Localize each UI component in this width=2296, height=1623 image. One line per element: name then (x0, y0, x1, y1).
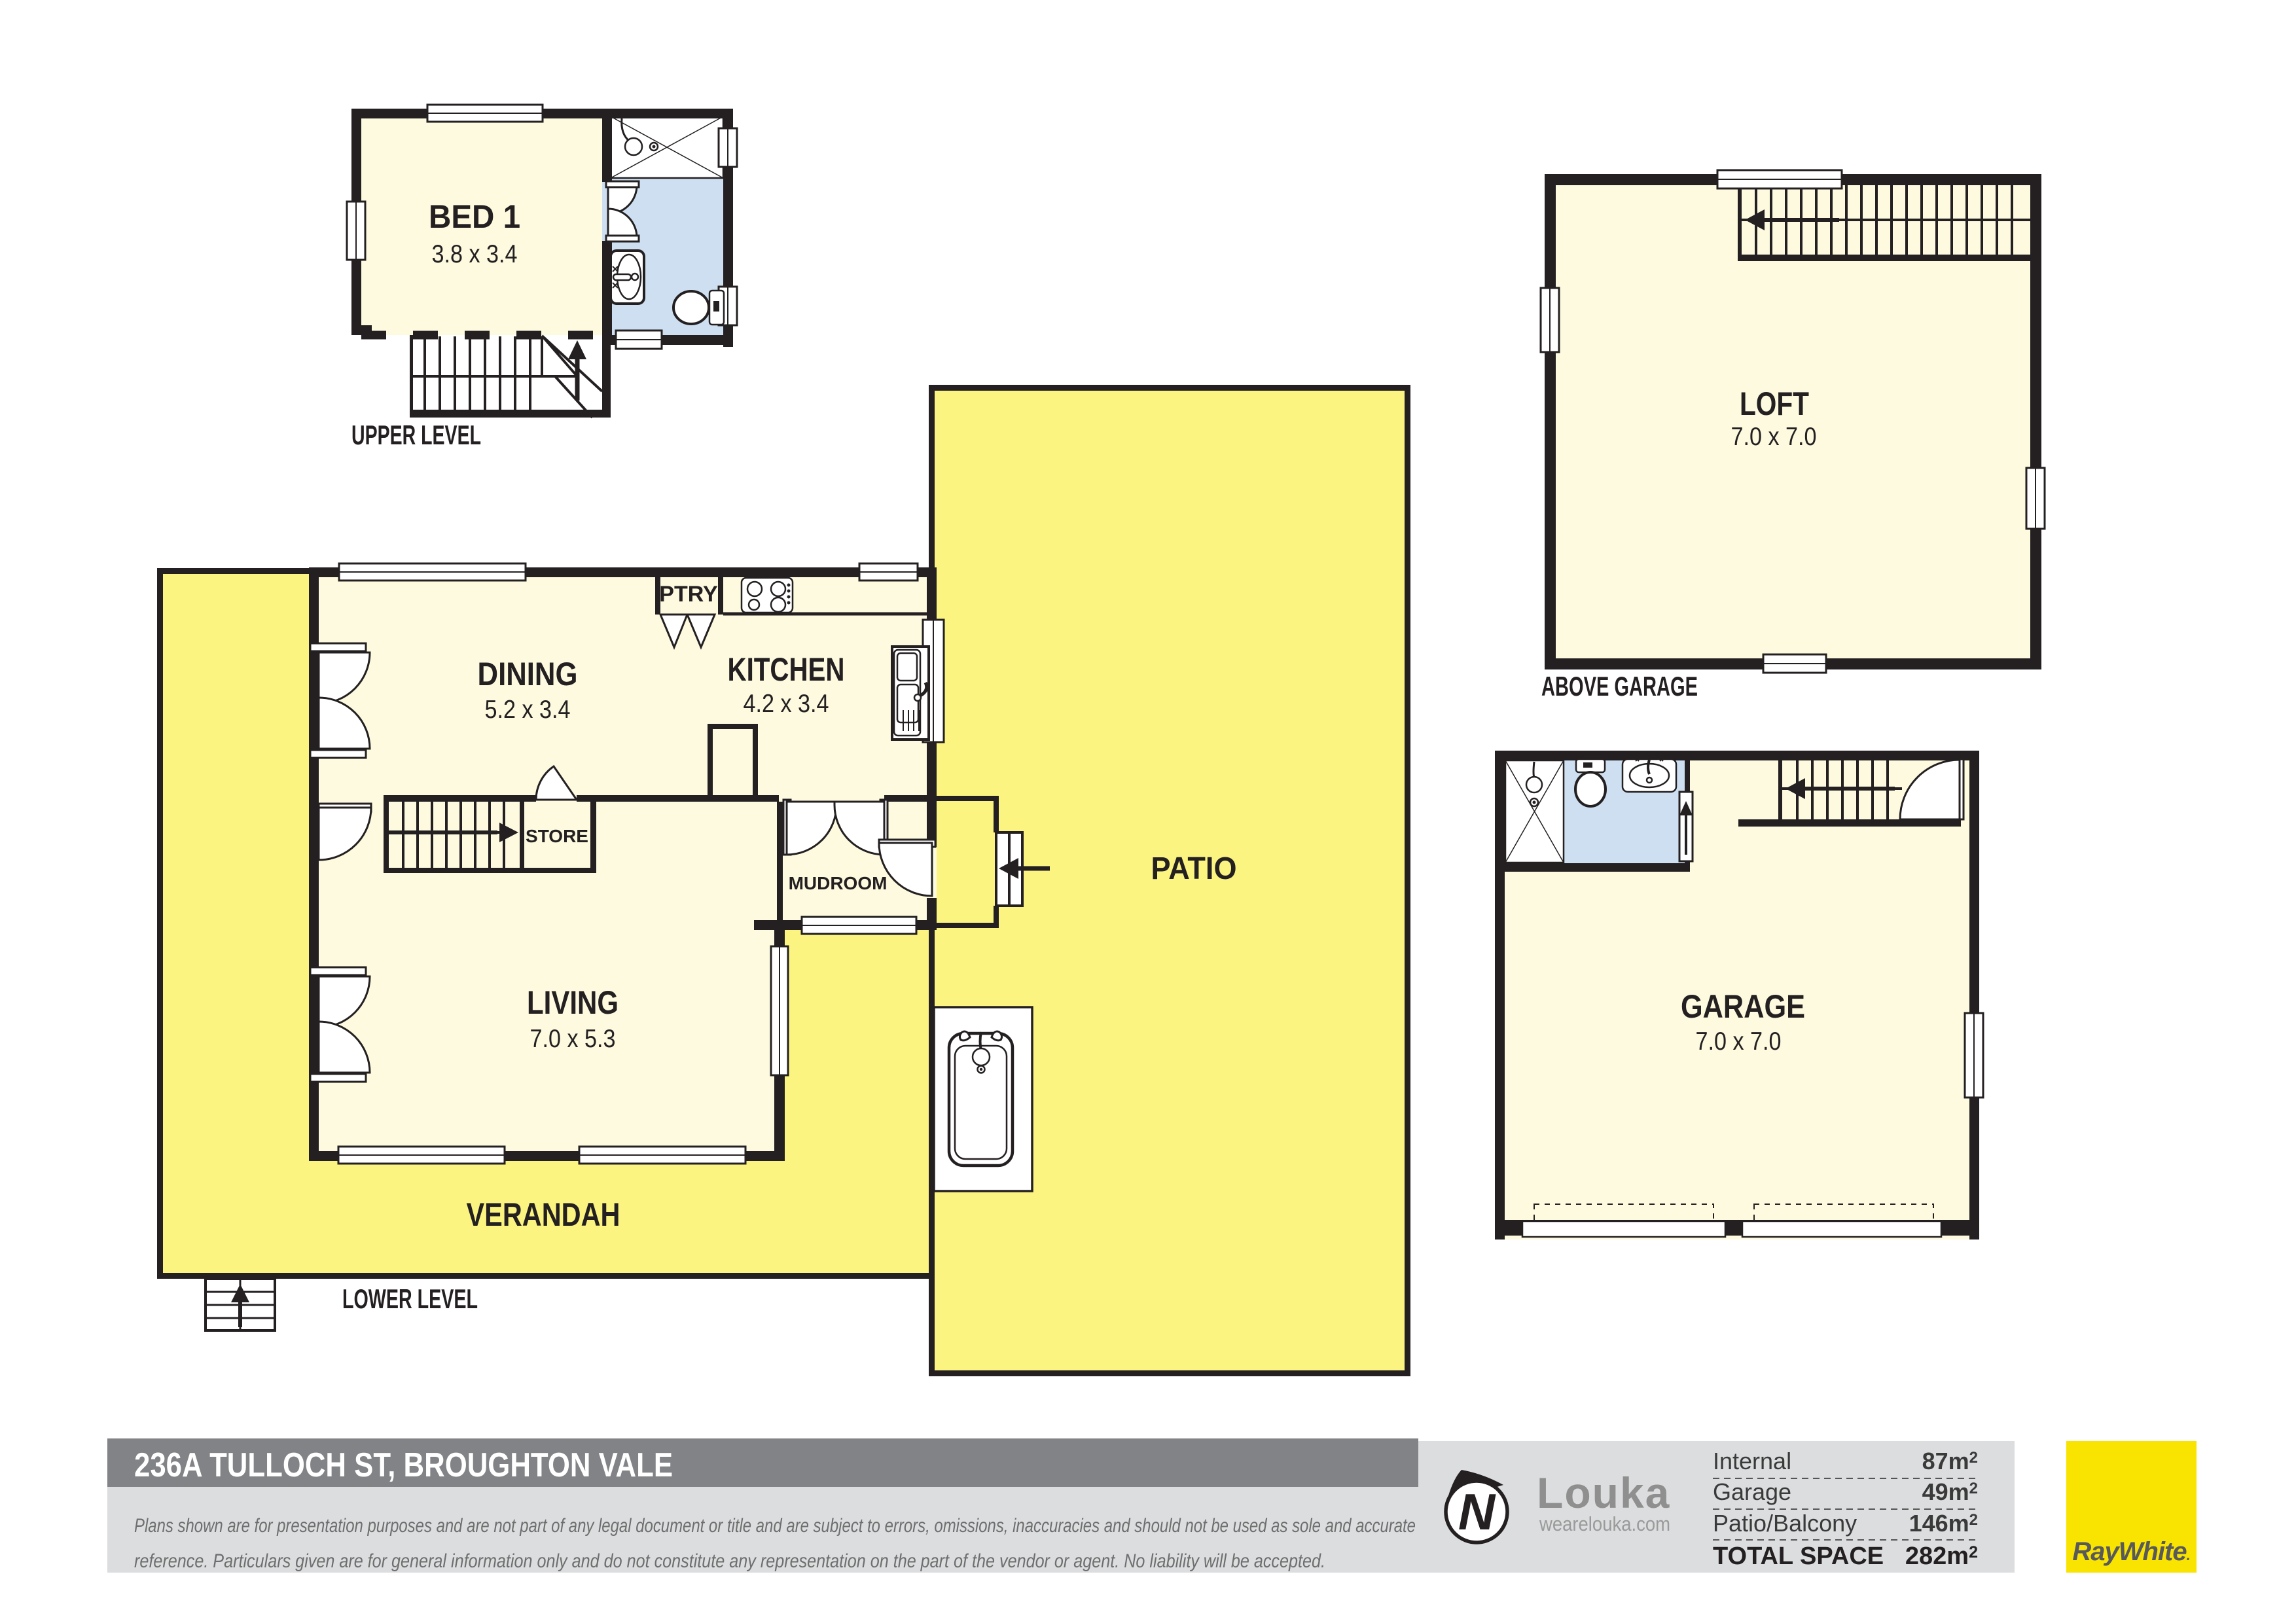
svg-text:7.0 x 5.3: 7.0 x 5.3 (530, 1025, 616, 1053)
svg-text:VERANDAH: VERANDAH (467, 1196, 620, 1233)
svg-text:4.2 x 3.4: 4.2 x 3.4 (744, 690, 829, 718)
svg-text:LOFT: LOFT (1740, 385, 1809, 422)
svg-text:MUDROOM: MUDROOM (789, 873, 888, 893)
svg-text:wearelouka.com: wearelouka.com (1539, 1512, 1670, 1535)
svg-text:DINING: DINING (478, 656, 578, 692)
svg-text:RayWhite.: RayWhite. (2072, 1537, 2189, 1566)
svg-text:UPPER LEVEL: UPPER LEVEL (351, 419, 481, 450)
svg-text:reference. Particulars given a: reference. Particulars given are for gen… (134, 1550, 1325, 1572)
svg-text:7.0 x 7.0: 7.0 x 7.0 (1696, 1027, 1782, 1056)
svg-text:TOTAL SPACE: TOTAL SPACE (1713, 1543, 1884, 1570)
svg-text:N: N (1458, 1483, 1496, 1541)
svg-text:PATIO: PATIO (1151, 851, 1237, 886)
svg-text:7.0 x 7.0: 7.0 x 7.0 (1731, 423, 1817, 451)
svg-text:Internal: Internal (1713, 1448, 1791, 1474)
svg-text:Plans shown are for presentati: Plans shown are for presentation purpose… (134, 1515, 1416, 1537)
svg-text:236A TULLOCH ST, BROUGHTON VAL: 236A TULLOCH ST, BROUGHTON VALE (134, 1446, 673, 1484)
svg-text:Patio/Balcony: Patio/Balcony (1713, 1510, 1857, 1537)
svg-text:BED 1: BED 1 (429, 198, 520, 235)
svg-text:ABOVE GARAGE: ABOVE GARAGE (1541, 671, 1698, 702)
svg-text:5.2 x 3.4: 5.2 x 3.4 (485, 696, 571, 724)
svg-text:Louka: Louka (1537, 1469, 1670, 1517)
svg-text:STORE: STORE (526, 826, 588, 846)
svg-text:Garage: Garage (1713, 1478, 1791, 1505)
svg-text:LOWER LEVEL: LOWER LEVEL (342, 1283, 478, 1314)
svg-text:282m2: 282m2 (1905, 1543, 1978, 1570)
svg-text:LIVING: LIVING (527, 984, 619, 1021)
svg-text:3.8 x 3.4: 3.8 x 3.4 (432, 240, 518, 268)
svg-text:146m2: 146m2 (1909, 1510, 1978, 1537)
svg-text:PTRY: PTRY (659, 582, 718, 607)
svg-text:GARAGE: GARAGE (1681, 988, 1805, 1025)
svg-text:KITCHEN: KITCHEN (728, 651, 845, 688)
